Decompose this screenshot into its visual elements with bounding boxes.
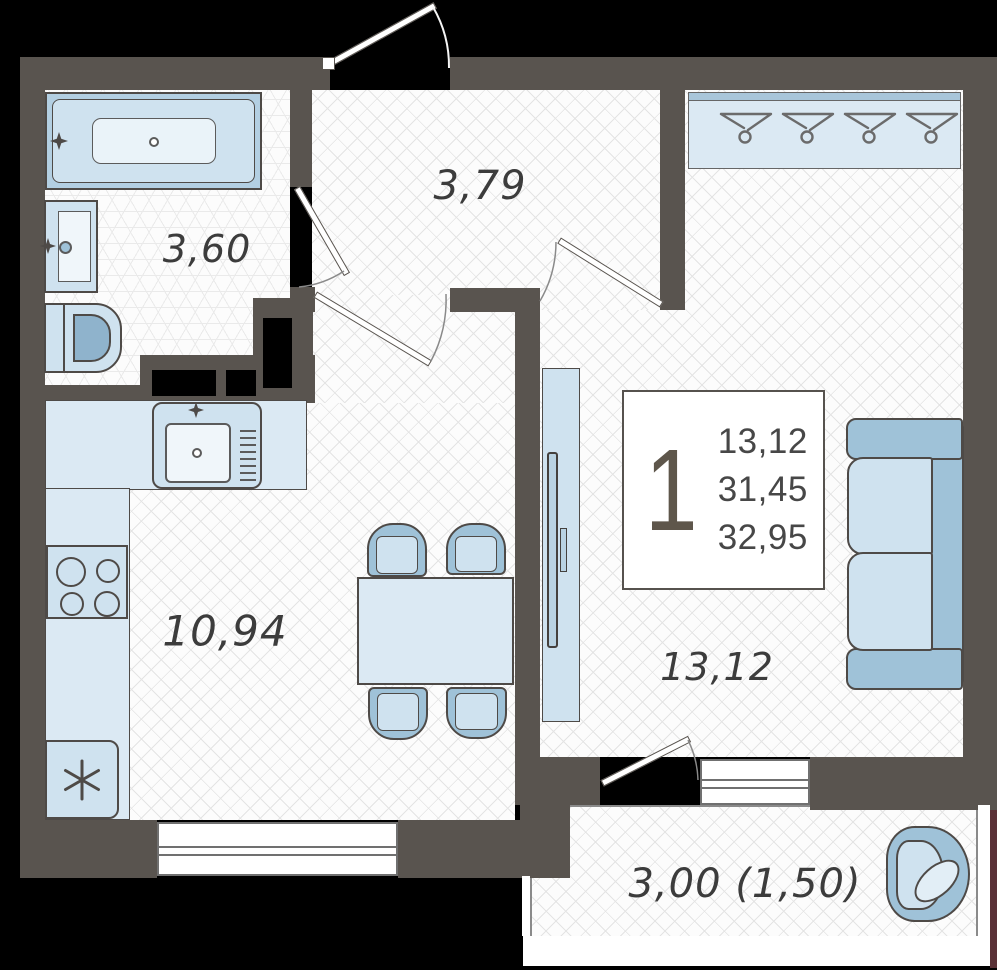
stove (46, 545, 128, 619)
kitchen-sink-unit (152, 402, 262, 489)
area-value-living: 13,12 (718, 418, 808, 466)
wardrobe (688, 92, 961, 169)
tv-mount (560, 528, 567, 572)
window-glass-line (702, 787, 808, 789)
living-room-window (700, 759, 810, 805)
sofa-cushion (847, 457, 933, 555)
balcony-parapet (978, 805, 990, 936)
stove-burner (96, 559, 120, 583)
chair-seat (377, 693, 419, 731)
wall-segment (20, 57, 330, 90)
hanger-icon (841, 107, 899, 147)
wardrobe-rod (689, 93, 960, 101)
dining-chair (446, 687, 507, 739)
dining-table (357, 577, 514, 685)
sink-drain (59, 241, 72, 254)
faucet-icon (40, 238, 56, 254)
bathtub (45, 92, 262, 190)
stove-burner (56, 557, 86, 587)
sofa-cushion (847, 552, 933, 651)
toilet-bowl-inner (73, 314, 111, 362)
entrance-door-swing-arc (433, 7, 449, 68)
apartment-info-box: 1 13,12 31,45 32,95 (622, 390, 825, 590)
dining-chair (446, 523, 506, 575)
area-values: 13,12 31,45 32,95 (718, 418, 808, 562)
entrance-door-leaf (329, 2, 437, 66)
kitchen-window (157, 822, 398, 876)
floor-plan: 3,60 3,79 10,94 13,12 3,00 (1,50) 1 13,1… (0, 0, 997, 970)
wall-segment (660, 90, 685, 310)
wall-segment (450, 57, 997, 90)
building-edge-accent (990, 810, 997, 968)
dish-rack (240, 430, 256, 486)
ventilation-shaft (263, 318, 292, 388)
wall-segment (810, 757, 997, 810)
wall-segment (963, 57, 997, 757)
sofa-armrest (846, 418, 963, 460)
toilet-bowl (63, 303, 122, 373)
wall-segment (515, 757, 600, 805)
room-label-kitchen: 10,94 (162, 607, 287, 656)
window-glass-line (159, 854, 396, 856)
toilet-tank (44, 303, 65, 373)
window-glass-line (159, 846, 396, 848)
wall-segment (290, 90, 312, 187)
chair-seat (376, 536, 418, 574)
balcony-parapet (523, 936, 990, 966)
wall-segment (515, 310, 540, 757)
wall-segment (450, 288, 540, 312)
entrance-door-hinge (322, 57, 335, 70)
sofa-backrest (929, 424, 964, 684)
dining-chair (367, 523, 427, 577)
tv (547, 452, 558, 648)
chair-seat (455, 536, 497, 572)
hanger-icon (903, 107, 961, 147)
wall-segment (20, 820, 157, 878)
ventilation-shaft (152, 370, 216, 396)
stove-burner (94, 591, 120, 617)
fridge (45, 740, 119, 819)
room-label-bathroom: 3,60 (163, 227, 252, 271)
room-label-living-room: 13,12 (660, 645, 774, 689)
bathtub-drain (149, 137, 159, 147)
sofa-armrest (846, 648, 963, 690)
ventilation-shaft (226, 370, 256, 396)
snowflake-icon (60, 758, 104, 802)
faucet-icon (50, 132, 68, 150)
dining-chair (368, 687, 428, 740)
room-label-balcony: 3,00 (1,50) (628, 861, 861, 907)
area-value-total: 32,95 (718, 514, 808, 562)
window-glass-line (702, 779, 808, 781)
faucet-icon (188, 402, 204, 418)
room-count: 1 (645, 441, 698, 540)
stove-burner (60, 592, 84, 616)
room-label-hallway: 3,79 (433, 163, 526, 209)
hanger-icon (779, 107, 837, 147)
wall-segment (520, 805, 570, 878)
balcony-parapet (522, 876, 530, 936)
wall-segment (20, 57, 45, 878)
area-value-apartment: 31,45 (718, 466, 808, 514)
balcony-armchair (886, 826, 970, 922)
kitchen-sink-drain (192, 448, 202, 458)
chair-seat (455, 693, 498, 730)
hanger-icon (717, 107, 775, 147)
